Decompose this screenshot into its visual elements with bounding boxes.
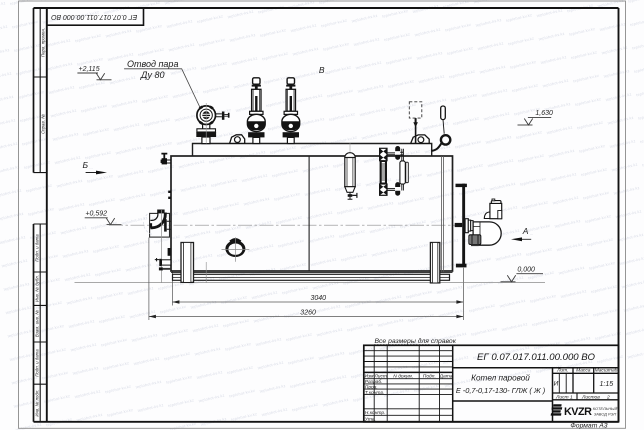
svg-text:В: В bbox=[319, 65, 325, 75]
svg-text:...: ... bbox=[530, 231, 533, 236]
svg-text:Все размеры для справок: Все размеры для справок bbox=[375, 337, 457, 345]
svg-text:И: И bbox=[554, 381, 559, 388]
svg-text:3040: 3040 bbox=[311, 295, 327, 302]
svg-text:Н.контр.: Н.контр. bbox=[365, 410, 386, 416]
svg-text:ЕГ 0.07.017.011.00.000 ВО: ЕГ 0.07.017.011.00.000 ВО bbox=[477, 352, 595, 363]
svg-text:Е -0,7-0,17-130- ГЛЖ ( Ж ): Е -0,7-0,17-130- ГЛЖ ( Ж ) bbox=[456, 386, 546, 395]
svg-text:Изм: Изм bbox=[364, 373, 374, 379]
svg-text:0,000: 0,000 bbox=[517, 267, 535, 274]
svg-text:Инв. № подл.: Инв. № подл. bbox=[35, 389, 40, 416]
svg-text:KVZR: KVZR bbox=[564, 406, 592, 418]
svg-text:КОТЕЛЬНЫЙ: КОТЕЛЬНЫЙ bbox=[593, 406, 618, 411]
svg-text:+0,592: +0,592 bbox=[85, 211, 107, 218]
svg-text:Лист: Лист bbox=[373, 373, 387, 379]
svg-text:+2,115: +2,115 bbox=[79, 66, 100, 73]
svg-text:Взам. инв. №: Взам. инв. № bbox=[35, 310, 40, 337]
svg-text:Лит.: Лит. bbox=[556, 368, 568, 374]
svg-text:Масса: Масса bbox=[576, 368, 591, 374]
svg-text:N докум.: N докум. bbox=[393, 373, 413, 379]
svg-text:Б: Б bbox=[83, 160, 89, 170]
svg-text:Перв. примен.: Перв. примен. bbox=[41, 28, 46, 57]
svg-text:Лист 1: Лист 1 bbox=[555, 394, 573, 400]
svg-text:1:15: 1:15 bbox=[599, 381, 613, 388]
svg-text:Разраб.: Разраб. bbox=[365, 379, 383, 385]
svg-text:Инв. № дубл.: Инв. № дубл. bbox=[35, 275, 40, 302]
svg-text:Ду 80: Ду 80 bbox=[140, 70, 164, 80]
svg-text:Подп. и дата: Подп. и дата bbox=[35, 234, 40, 262]
svg-text:А: А bbox=[522, 226, 529, 236]
svg-text:...: ... bbox=[326, 70, 329, 75]
svg-text:ЗАВОД РЭП: ЗАВОД РЭП bbox=[594, 412, 617, 417]
svg-text:Пров.: Пров. bbox=[365, 385, 378, 391]
svg-text:Отвод пара: Отвод пара bbox=[127, 59, 178, 69]
svg-text:3260: 3260 bbox=[300, 309, 316, 316]
svg-text:Подп.: Подп. bbox=[423, 373, 436, 379]
svg-text:ЕГ 0.07.017.011.00.000 ВО: ЕГ 0.07.017.011.00.000 ВО bbox=[51, 13, 138, 20]
svg-text:Масштаб: Масштаб bbox=[595, 368, 618, 374]
svg-text:Листов: Листов bbox=[581, 394, 600, 400]
svg-text:Утв.: Утв. bbox=[365, 416, 376, 422]
svg-text:1,630: 1,630 bbox=[535, 110, 553, 117]
svg-text:Справ. №: Справ. № bbox=[41, 114, 46, 134]
svg-text:...: ... bbox=[90, 165, 93, 170]
svg-text:Формат А3: Формат А3 bbox=[570, 423, 607, 430]
svg-text:Т.контр.: Т.контр. bbox=[365, 390, 385, 396]
svg-text:2: 2 bbox=[606, 394, 610, 400]
svg-text:Дата: Дата bbox=[439, 373, 453, 379]
svg-text:Котел паровой: Котел паровой bbox=[471, 374, 530, 383]
svg-text:Подп. и дата: Подп. и дата bbox=[35, 349, 40, 377]
